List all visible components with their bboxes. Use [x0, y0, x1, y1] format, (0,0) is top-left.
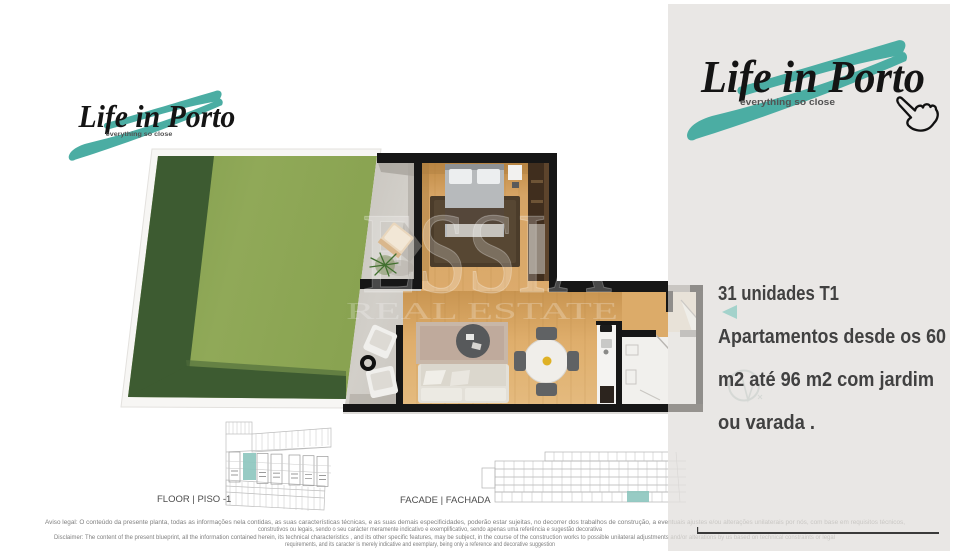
svg-text:FACADE | FACHADA: FACADE | FACHADA: [400, 495, 491, 506]
svg-text:everything so close: everything so close: [740, 97, 835, 107]
svg-text:construtivos ou legais, sendo: construtivos ou legais, sendo o seu cará…: [258, 526, 602, 533]
svg-text:31 unidades T1: 31 unidades T1: [718, 283, 839, 305]
svg-text:requirements, and its caracter: requirements, and its caracter is merely…: [285, 541, 555, 548]
svg-text:Life in Porto: Life in Porto: [78, 99, 236, 134]
svg-text:ou varada .: ou varada .: [718, 412, 815, 434]
svg-text:m2 até 96 m2 com jardim: m2 até 96 m2 com jardim: [718, 369, 934, 391]
svg-text:Apartamentos desde os 60: Apartamentos desde os 60: [718, 326, 946, 348]
svg-text:Life in Porto: Life in Porto: [700, 52, 925, 102]
svg-text:everything so close: everything so close: [106, 131, 173, 138]
svg-text:REAL ESTATE: REAL ESTATE: [346, 299, 618, 325]
svg-text:FLOOR | PISO -1: FLOOR | PISO -1: [157, 494, 231, 505]
